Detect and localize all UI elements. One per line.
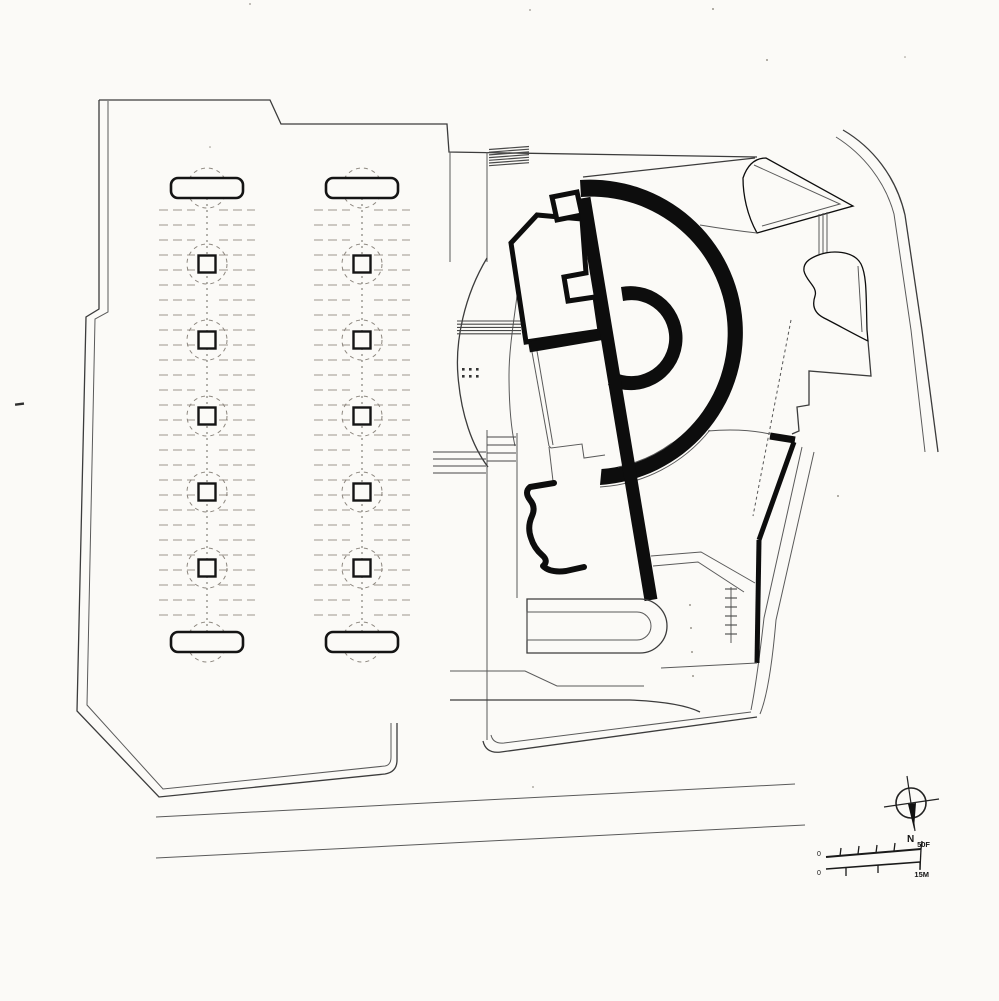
north-arrow-icon: N xyxy=(884,776,939,845)
south-curb-outer xyxy=(483,717,757,752)
corridor-west-wall-b xyxy=(537,351,553,445)
north-label: N xyxy=(907,834,914,845)
terrace-stairs xyxy=(725,587,737,643)
planting-island-end xyxy=(171,632,243,652)
approach-band-upper xyxy=(450,671,644,686)
scanned-drawing-page: N 0 0 50F 15M xyxy=(0,0,999,1001)
paver-dot xyxy=(462,375,465,378)
paver-dot xyxy=(469,375,472,378)
parking-lot xyxy=(159,168,410,662)
east-boundary-steps xyxy=(792,341,871,434)
terrace-arc-connector xyxy=(708,430,770,434)
paver-dot xyxy=(476,375,479,378)
tree-planter-square xyxy=(199,408,216,425)
paver-dot xyxy=(476,368,479,371)
site-plan-drawing: N 0 0 50F 15M xyxy=(0,0,999,1001)
plaza-paver-dots xyxy=(462,368,479,378)
building-footprint xyxy=(511,158,770,600)
scale-feet-label: 50F xyxy=(917,840,930,849)
tree-planter-square xyxy=(354,408,371,425)
entry-plaza xyxy=(433,147,529,474)
scale-bar: 0 0 50F 15M xyxy=(817,840,930,879)
site-boundary-west-inner xyxy=(87,101,391,789)
planting-island-end xyxy=(326,632,398,652)
street-south-line-2 xyxy=(156,825,805,858)
planting-island-end xyxy=(326,178,398,198)
se-plaza-edge-a xyxy=(651,552,755,583)
terrace-road-line-2 xyxy=(760,452,814,714)
spine-wall xyxy=(584,198,651,600)
scale-zero-top: 0 xyxy=(817,851,821,858)
se-plaza-edge-b xyxy=(653,562,744,592)
scale-zero-bottom: 0 xyxy=(817,870,821,877)
tree-planter-square xyxy=(199,332,216,349)
dropoff-wall xyxy=(804,252,868,341)
drive-loop-inner xyxy=(527,612,651,640)
south-curb-inner xyxy=(491,712,751,743)
tree-planter-square xyxy=(354,256,371,273)
corridor-south-step xyxy=(549,444,605,458)
entry-ramp xyxy=(819,212,827,256)
tree-planter-square xyxy=(199,256,216,273)
tree-planter-square xyxy=(354,332,371,349)
walkway-steps xyxy=(487,437,516,461)
west-walk-bands xyxy=(433,452,486,473)
plaza-stairs xyxy=(457,321,521,334)
scale-meters-label: 15M xyxy=(914,870,929,879)
plaza-lens-west-curve xyxy=(457,258,488,467)
terrace-fence-dashed xyxy=(753,320,791,516)
forecourt-edge xyxy=(700,225,757,233)
se-plaza-east-wall xyxy=(757,540,759,663)
tree-planter-square xyxy=(354,560,371,577)
east-terrace xyxy=(651,158,871,677)
terrace-wall-cap xyxy=(770,436,795,440)
tree-planter-square xyxy=(199,484,216,501)
planting-island-end xyxy=(171,178,243,198)
crosswalk-hatching xyxy=(489,147,529,166)
se-plaza-south-edge xyxy=(661,663,757,668)
paver-dot xyxy=(462,368,465,371)
drive-loop-outer xyxy=(527,599,667,653)
freeform-wall xyxy=(527,483,584,571)
paver-dot xyxy=(469,368,472,371)
entrance-canopy xyxy=(743,158,853,233)
lower-room-west-wall xyxy=(549,447,553,481)
street-south-line-1 xyxy=(156,784,795,817)
site-boundary-north-edge xyxy=(99,100,757,157)
entry-canopy-line xyxy=(583,158,755,177)
tree-planter-square xyxy=(354,484,371,501)
rooftop-pavilion xyxy=(552,192,582,220)
corridor-west-wall-a xyxy=(532,352,549,446)
tree-planter-square xyxy=(199,560,216,577)
site-boundary-west-outer xyxy=(77,100,397,797)
